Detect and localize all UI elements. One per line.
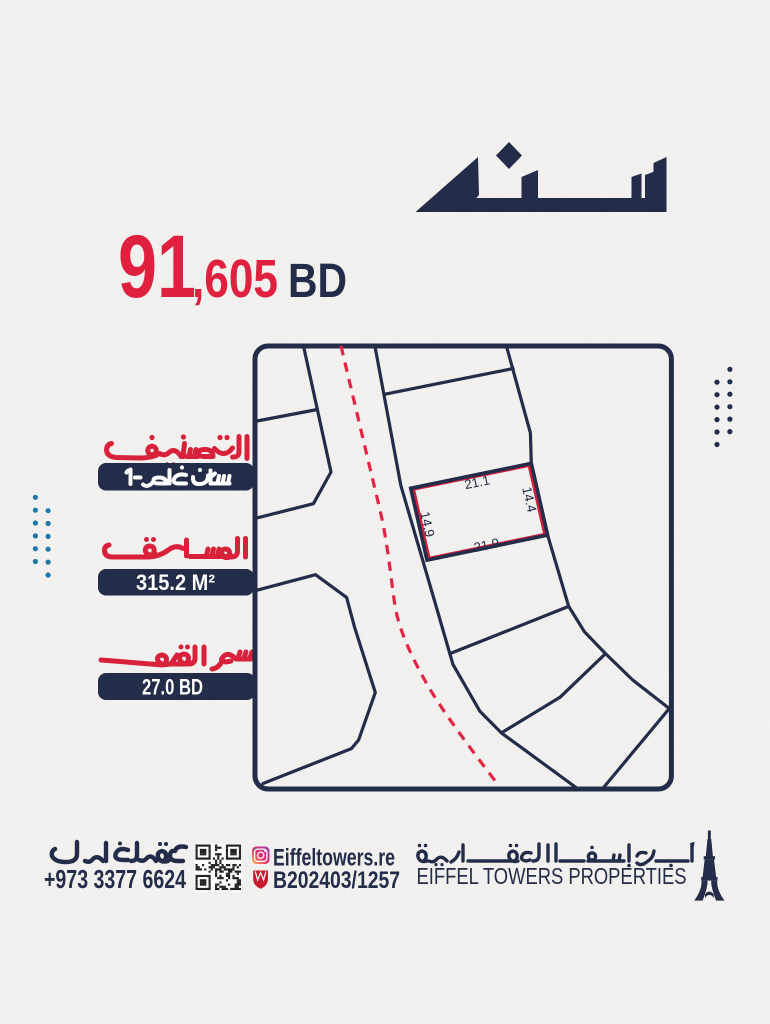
svg-text:,605: ,605 xyxy=(192,249,278,309)
svg-text:BD: BD xyxy=(288,255,347,308)
svg-text:EIFFEL TOWERS PROPERTIES: EIFFEL TOWERS PROPERTIES xyxy=(417,863,687,889)
svg-text:27.0 BD: 27.0 BD xyxy=(142,675,203,700)
svg-text:+973 3377 6624: +973 3377 6624 xyxy=(44,864,186,894)
svg-text:91: 91 xyxy=(118,216,196,316)
svg-text:B202403/1257: B202403/1257 xyxy=(273,867,400,894)
svg-text:315.2 M²: 315.2 M² xyxy=(136,570,215,595)
